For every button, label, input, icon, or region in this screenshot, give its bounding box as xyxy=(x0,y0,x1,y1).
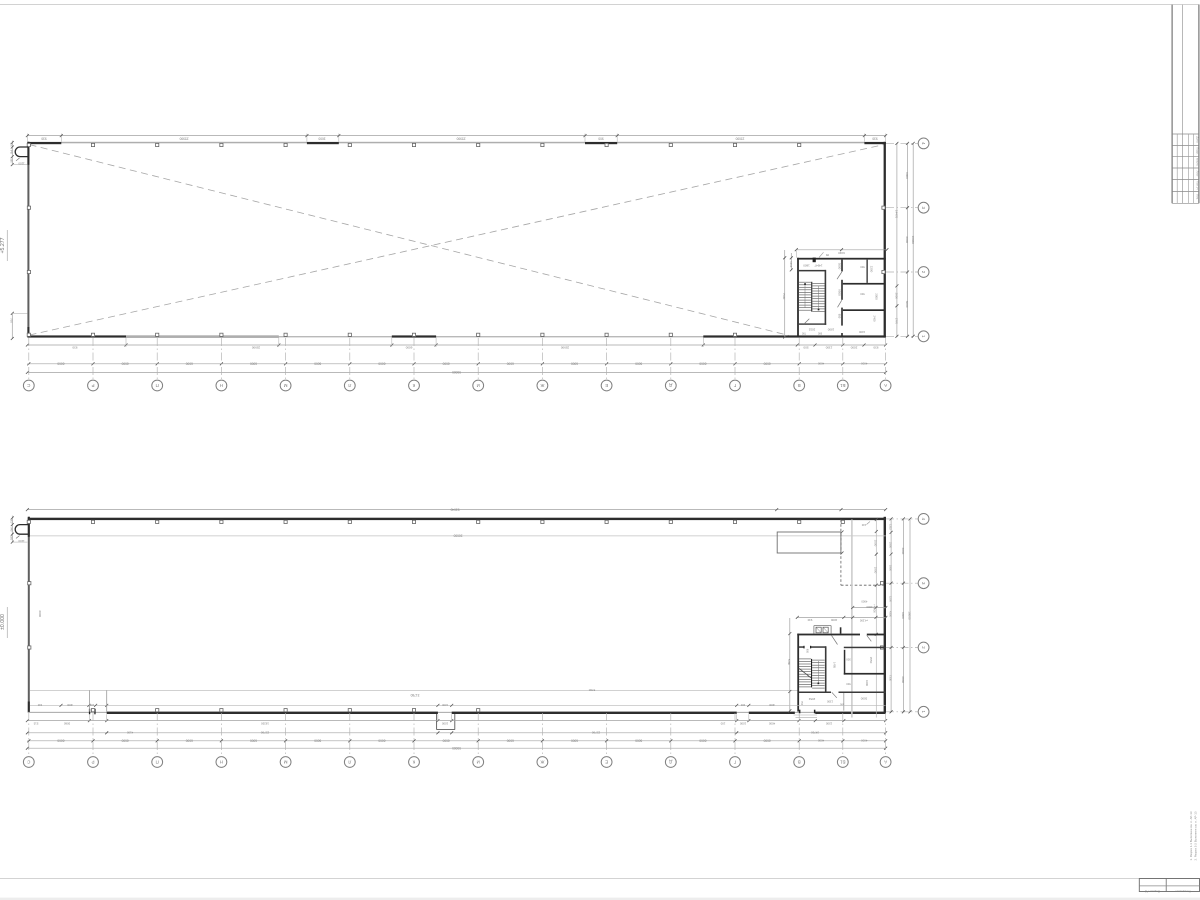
svg-text:И: И xyxy=(477,383,480,388)
svg-text:25900: 25900 xyxy=(560,346,569,350)
svg-text:2000: 2000 xyxy=(894,293,898,300)
svg-text:9500: 9500 xyxy=(838,289,842,296)
svg-text:6000: 6000 xyxy=(507,738,514,742)
svg-text:2400: 2400 xyxy=(873,316,877,322)
svg-text:1600: 1600 xyxy=(859,330,865,334)
svg-text:2052: 2052 xyxy=(808,697,815,701)
svg-text:500: 500 xyxy=(846,658,851,662)
svg-text:Д: Д xyxy=(669,760,672,765)
svg-text:С: С xyxy=(27,760,30,765)
svg-text:С: С xyxy=(27,383,30,388)
svg-text:6000: 6000 xyxy=(186,738,193,742)
svg-text:6000: 6000 xyxy=(571,738,578,742)
svg-text:90000: 90000 xyxy=(452,370,461,374)
svg-text:5060: 5060 xyxy=(63,721,70,725)
svg-text:4000: 4000 xyxy=(866,605,873,609)
svg-text:П: П xyxy=(156,383,159,388)
svg-text:6000: 6000 xyxy=(57,361,64,365)
svg-text:30000: 30000 xyxy=(453,533,462,537)
svg-text:А: А xyxy=(884,760,887,765)
svg-text:А: А xyxy=(884,383,887,388)
svg-text:К: К xyxy=(412,760,415,765)
svg-text:2200: 2200 xyxy=(870,266,874,273)
svg-text:380: 380 xyxy=(10,159,13,164)
svg-text:Р: Р xyxy=(91,383,94,388)
svg-text:4300: 4300 xyxy=(889,611,893,618)
svg-text:6000: 6000 xyxy=(442,361,449,365)
svg-text:5790: 5790 xyxy=(588,688,595,692)
svg-text:6000: 6000 xyxy=(186,361,193,365)
svg-text:500: 500 xyxy=(846,682,851,686)
svg-text:6000: 6000 xyxy=(905,301,909,308)
svg-text:2000: 2000 xyxy=(850,346,857,350)
svg-text:900: 900 xyxy=(598,136,604,140)
svg-text:14470: 14470 xyxy=(894,210,898,219)
svg-text:1000: 1000 xyxy=(865,680,869,686)
svg-text:24760: 24760 xyxy=(811,731,819,735)
svg-text:+4.200: +4.200 xyxy=(859,619,868,623)
svg-text:500: 500 xyxy=(860,292,865,296)
svg-text:Копировал: Копировал xyxy=(1175,889,1190,893)
svg-text:3000: 3000 xyxy=(860,697,867,701)
svg-text:1000: 1000 xyxy=(442,703,448,707)
svg-text:6000: 6000 xyxy=(901,676,905,683)
svg-text:6000: 6000 xyxy=(635,738,642,742)
svg-text:1100: 1100 xyxy=(18,539,25,543)
svg-text:Л: Л xyxy=(348,760,351,765)
svg-text:3550: 3550 xyxy=(869,657,873,664)
svg-text:1500: 1500 xyxy=(825,721,832,725)
svg-text:380: 380 xyxy=(10,536,13,541)
svg-text:М: М xyxy=(283,383,287,388)
svg-text:25790: 25790 xyxy=(591,731,600,735)
svg-text:6000: 6000 xyxy=(250,738,257,742)
svg-text:930: 930 xyxy=(72,346,77,350)
svg-text:Лист: Лист xyxy=(1195,170,1199,177)
svg-text:2. Разрез 2-2 Выполнен см. л.: 2. Разрез 2-2 Выполнен см. л. АР-13 xyxy=(1193,811,1197,860)
svg-text:130: 130 xyxy=(861,523,866,527)
svg-text:300: 300 xyxy=(10,519,13,524)
svg-text:900: 900 xyxy=(817,332,822,335)
svg-text:6000: 6000 xyxy=(442,738,449,742)
svg-text:930: 930 xyxy=(41,136,47,140)
svg-text:Н: Н xyxy=(220,760,223,765)
svg-text:6000: 6000 xyxy=(405,346,412,350)
svg-text:2500: 2500 xyxy=(873,540,877,547)
svg-text:513: 513 xyxy=(33,721,38,725)
svg-text:покум.: покум. xyxy=(1195,158,1199,167)
svg-text:Н: Н xyxy=(220,383,223,388)
svg-text:1300: 1300 xyxy=(827,700,833,704)
svg-text:1800: 1800 xyxy=(827,328,834,332)
svg-text:25900: 25900 xyxy=(179,136,188,140)
svg-text:940: 940 xyxy=(37,703,42,707)
svg-text:6000: 6000 xyxy=(635,361,642,365)
svg-text:6000: 6000 xyxy=(905,236,909,243)
svg-text:6000: 6000 xyxy=(250,361,257,365)
svg-text:945: 945 xyxy=(10,150,13,155)
svg-text:600: 600 xyxy=(839,703,844,706)
svg-text:К: К xyxy=(412,383,415,388)
svg-text:2000: 2000 xyxy=(875,293,879,300)
svg-text:Е: Е xyxy=(605,383,608,388)
svg-text:П: П xyxy=(156,760,159,765)
svg-text:5780: 5780 xyxy=(787,659,791,666)
svg-text:9430: 9430 xyxy=(838,251,845,255)
svg-text:6000: 6000 xyxy=(378,361,385,365)
svg-text:1000: 1000 xyxy=(739,721,746,725)
svg-text:300: 300 xyxy=(10,143,13,148)
svg-text:4000: 4000 xyxy=(861,600,867,604)
svg-text:4000: 4000 xyxy=(830,618,837,622)
svg-text:И: И xyxy=(477,760,480,765)
svg-text:4000: 4000 xyxy=(817,739,824,743)
svg-text:2770: 2770 xyxy=(894,318,898,325)
svg-text:4000: 4000 xyxy=(861,739,868,743)
svg-text:6000: 6000 xyxy=(121,738,128,742)
svg-text:18000: 18000 xyxy=(908,611,912,620)
svg-text:Подп.: Подп. xyxy=(1195,147,1199,155)
svg-text:1500: 1500 xyxy=(889,596,893,602)
svg-text:1315: 1315 xyxy=(889,524,893,530)
svg-text:Кол.уч: Кол.уч xyxy=(1195,181,1199,190)
svg-text:6000: 6000 xyxy=(57,738,64,742)
svg-text:19250: 19250 xyxy=(261,721,269,725)
svg-text:В: В xyxy=(798,383,801,388)
svg-text:25900: 25900 xyxy=(456,136,465,140)
svg-text:В: В xyxy=(798,760,801,765)
svg-text:6000: 6000 xyxy=(905,172,909,179)
svg-text:6000: 6000 xyxy=(699,738,706,742)
svg-text:6000: 6000 xyxy=(121,361,128,365)
svg-text:100: 100 xyxy=(720,721,725,725)
svg-text:100: 100 xyxy=(89,703,94,707)
svg-text:±0.000: ±0.000 xyxy=(0,614,6,630)
svg-text:7330: 7330 xyxy=(889,675,893,682)
svg-text:1210: 1210 xyxy=(789,261,793,267)
svg-text:25900: 25900 xyxy=(251,346,260,350)
svg-text:4000: 4000 xyxy=(861,362,868,366)
svg-text:4000: 4000 xyxy=(67,703,73,707)
svg-text:500: 500 xyxy=(860,265,865,269)
svg-text:2052: 2052 xyxy=(808,328,815,332)
svg-text:930: 930 xyxy=(872,136,878,140)
svg-text:950: 950 xyxy=(838,314,842,319)
svg-text:500: 500 xyxy=(803,346,808,350)
svg-text:93040: 93040 xyxy=(450,507,459,511)
svg-text:1495: 1495 xyxy=(833,662,837,668)
svg-text:18000: 18000 xyxy=(911,236,915,245)
svg-text:750: 750 xyxy=(10,318,14,323)
svg-text:4100: 4100 xyxy=(126,731,133,735)
svg-text:1900: 1900 xyxy=(873,567,877,574)
svg-text:906: 906 xyxy=(806,649,809,654)
svg-text:3000: 3000 xyxy=(318,136,325,140)
svg-text:900: 900 xyxy=(740,703,745,707)
svg-text:1000: 1000 xyxy=(441,721,448,725)
svg-text:4000: 4000 xyxy=(817,362,824,366)
svg-text:945: 945 xyxy=(10,527,13,532)
svg-text:Б1: Б1 xyxy=(840,760,846,765)
svg-text:Л: Л xyxy=(348,383,351,388)
svg-text:6000: 6000 xyxy=(763,361,770,365)
svg-text:Формат А1: Формат А1 xyxy=(1145,889,1160,893)
svg-text:Р: Р xyxy=(91,760,94,765)
svg-text:90000: 90000 xyxy=(452,746,461,750)
svg-text:1600: 1600 xyxy=(803,264,810,268)
svg-text:Д: Д xyxy=(669,383,672,388)
svg-text:15000: 15000 xyxy=(735,136,744,140)
svg-text:М: М xyxy=(283,760,287,765)
svg-text:6000: 6000 xyxy=(378,738,385,742)
svg-text:Б1: Б1 xyxy=(840,383,846,388)
svg-text:6000: 6000 xyxy=(507,361,514,365)
svg-text:2500: 2500 xyxy=(889,542,893,549)
svg-text:6000: 6000 xyxy=(901,548,905,555)
svg-text:25790: 25790 xyxy=(260,731,269,735)
svg-text:1. Разрез 1-1 Выполнен см. л.: 1. Разрез 1-1 Выполнен см. л. АР-13 xyxy=(1189,811,1193,860)
svg-text:4000: 4000 xyxy=(768,721,775,725)
svg-text:7500: 7500 xyxy=(782,293,786,300)
svg-text:4000: 4000 xyxy=(769,703,775,707)
svg-text:700: 700 xyxy=(801,332,806,335)
svg-text:+5.277: +5.277 xyxy=(0,237,6,253)
svg-text:6000: 6000 xyxy=(314,361,321,365)
svg-text:750: 750 xyxy=(800,701,804,706)
svg-text:Ж: Ж xyxy=(540,760,544,765)
svg-text:6000: 6000 xyxy=(314,738,321,742)
svg-text:05: 05 xyxy=(826,253,830,257)
svg-text:6000: 6000 xyxy=(38,610,42,617)
svg-text:6000: 6000 xyxy=(901,612,905,619)
svg-text:1900: 1900 xyxy=(889,565,893,572)
svg-text:1300: 1300 xyxy=(825,346,832,350)
svg-text:6000: 6000 xyxy=(571,361,578,365)
svg-text:14947: 14947 xyxy=(814,264,822,268)
svg-text:Е: Е xyxy=(605,760,608,765)
svg-text:6000: 6000 xyxy=(699,361,706,365)
svg-text:3000: 3000 xyxy=(838,263,842,270)
svg-text:930: 930 xyxy=(873,346,878,350)
svg-text:Изм.: Изм. xyxy=(1195,194,1199,200)
svg-text:31780: 31780 xyxy=(410,693,419,697)
svg-text:930: 930 xyxy=(807,618,812,622)
svg-text:Дата: Дата xyxy=(1195,136,1199,143)
svg-text:6000: 6000 xyxy=(763,738,770,742)
svg-text:Ж: Ж xyxy=(540,383,544,388)
